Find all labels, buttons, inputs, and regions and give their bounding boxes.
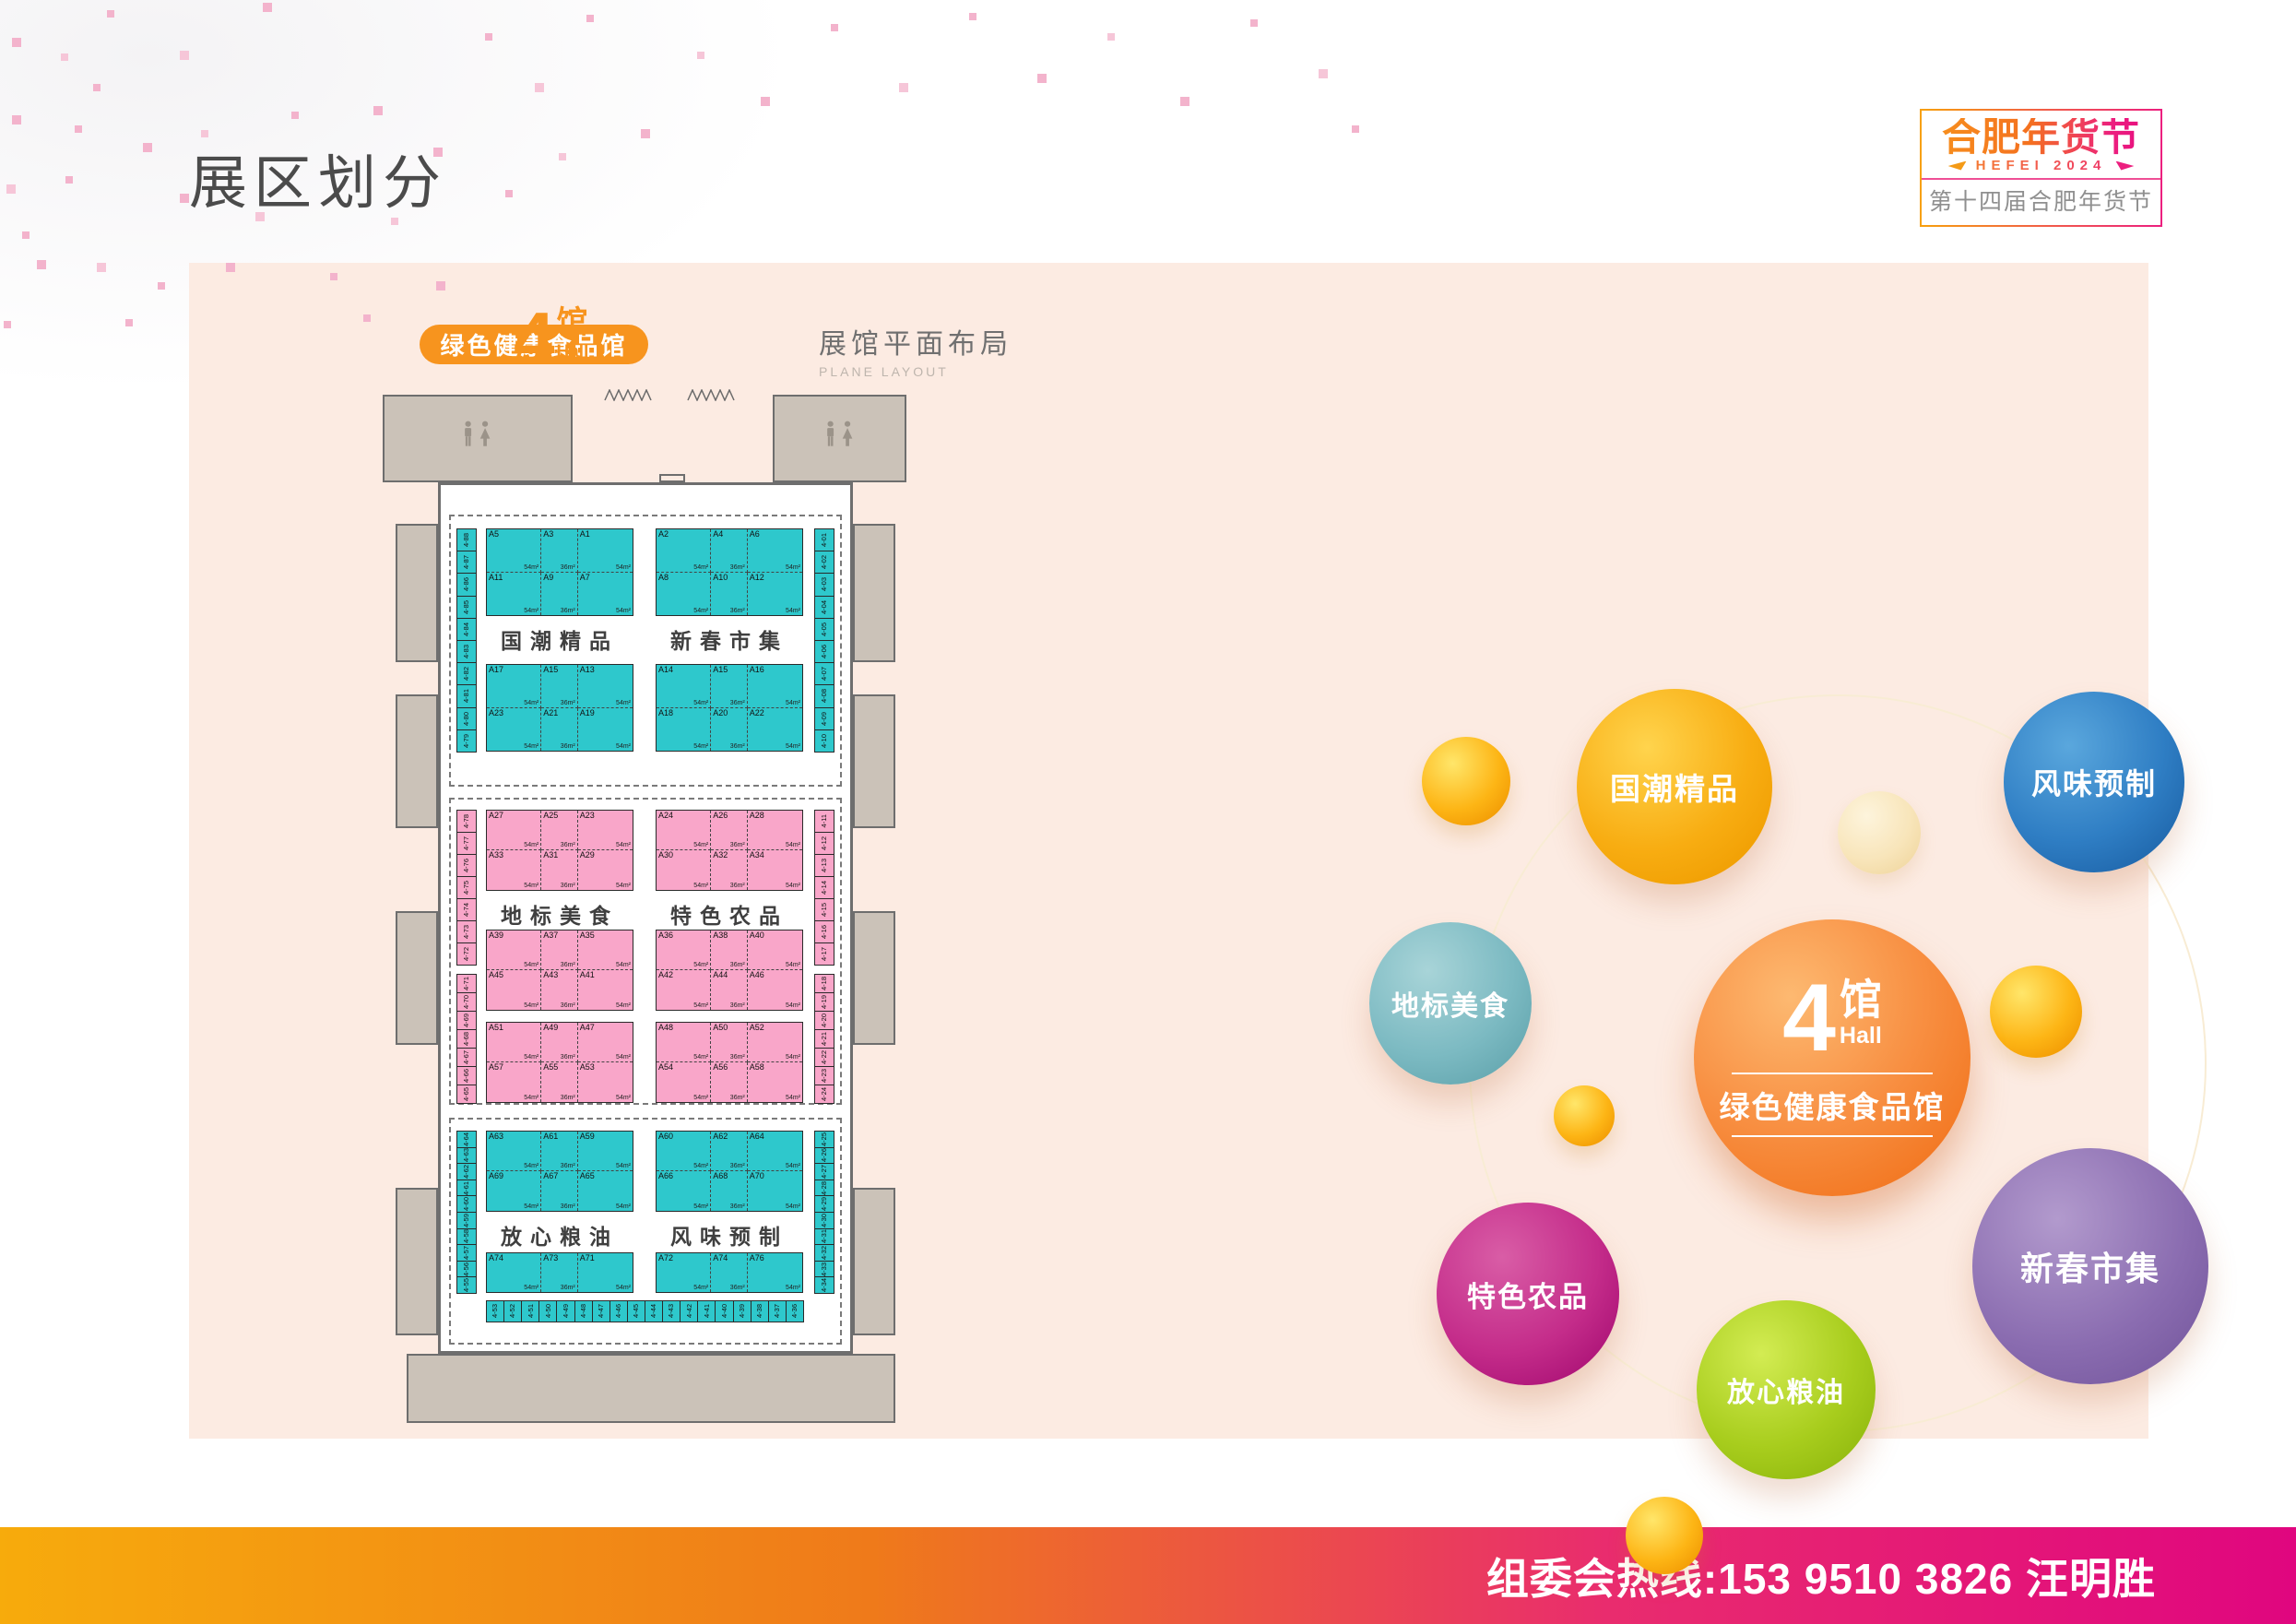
center-bubble-hall-row: 4 馆 Hall: [1782, 973, 1882, 1064]
divider-line: [1732, 1135, 1933, 1137]
event-logo: 合肥年货节 HEFEI 2024 第十四届合肥年货节: [1920, 109, 2162, 227]
bubble-label: 国潮精品: [1610, 765, 1739, 809]
bubble-label: 风味预制: [2031, 761, 2157, 803]
bubble-fangxin: 放心粮油: [1697, 1300, 1876, 1479]
bubble-label: 新春市集: [2020, 1242, 2160, 1290]
bubble-guochao: 国潮精品: [1577, 689, 1772, 884]
bubble-hall-center: 4 馆 Hall 绿色健康食品馆: [1694, 919, 1971, 1196]
slide-page: 展区划分 合肥年货节 HEFEI 2024 第十四届合肥年货节 4 馆 Hall…: [0, 0, 2296, 1624]
logo-year-row: HEFEI 2024: [1922, 158, 2160, 173]
bubble-fengwei: 风味预制: [2004, 692, 2184, 872]
decor-ball-gold: [1422, 737, 1510, 825]
center-hall-en: Hall: [1840, 1024, 1882, 1049]
logo-title: 合肥年货节: [1922, 118, 2160, 157]
divider-line: [1732, 1073, 1933, 1074]
hotline: 组委会热线:153 9510 3826 汪明胜: [1486, 1546, 2156, 1606]
bubble-dibiao: 地标美食: [1369, 922, 1532, 1085]
bubble-label: 放心粮油: [1727, 1369, 1845, 1410]
center-hall-unit: 馆: [1840, 978, 1882, 1021]
logo-flourish-left-icon: [1948, 161, 1967, 171]
decor-ball-gold: [1990, 966, 2082, 1058]
logo-subtitle: 第十四届合肥年货节: [1922, 178, 2160, 217]
center-hall-number: 4: [1782, 973, 1836, 1064]
page-title: 展区划分: [189, 136, 447, 220]
decor-ball-gold: [1554, 1085, 1615, 1146]
center-hall-name: 绿色健康食品馆: [1720, 1083, 1946, 1127]
bubble-xinchun: 新春市集: [1972, 1148, 2208, 1384]
bubble-label: 特色农品: [1467, 1274, 1589, 1315]
logo-year: HEFEI 2024: [1976, 158, 2107, 173]
bubble-label: 地标美食: [1391, 983, 1509, 1024]
footer-bar: 组委会热线:153 9510 3826 汪明胜: [0, 1527, 2296, 1624]
decor-ball-cream: [1838, 791, 1921, 874]
logo-flourish-right-icon: [2115, 161, 2134, 171]
bubble-texe: 特色农品: [1437, 1203, 1619, 1385]
bubble-cluster: 4 馆 Hall 绿色健康食品馆 国潮精品风味预制地标美食特色农品放心粮油新春市…: [189, 263, 2148, 1439]
center-hall-column: 馆 Hall: [1840, 978, 1882, 1049]
content-panel: 4 馆 Hall 绿色健康食品馆 展馆平面布局 PLANE LAYOUT: [189, 263, 2148, 1439]
decor-ball-gold: [1626, 1497, 1703, 1574]
